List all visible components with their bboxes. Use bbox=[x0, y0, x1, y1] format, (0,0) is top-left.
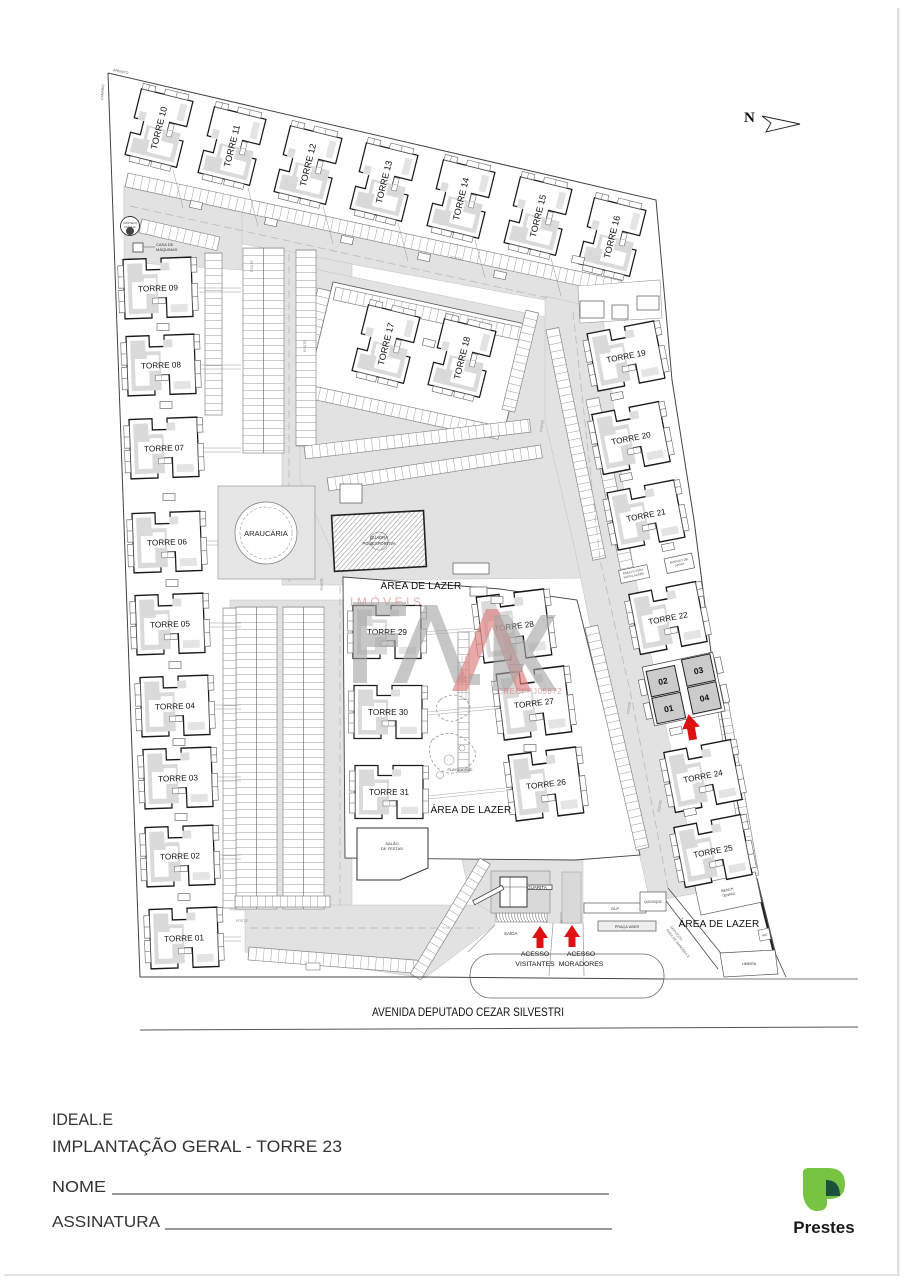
svg-text:ÁREA DE LAZER: ÁREA DE LAZER bbox=[381, 579, 462, 592]
svg-text:TORRE 09: TORRE 09 bbox=[138, 283, 179, 293]
svg-text:ÁREA DE LAZER: ÁREA DE LAZER bbox=[679, 917, 760, 930]
svg-text:ASSINATURA: ASSINATURA bbox=[52, 1214, 160, 1231]
svg-text:ACESSO: ACESSO bbox=[521, 951, 549, 958]
svg-text:POLIESPORTIVA: POLIESPORTIVA bbox=[362, 541, 395, 546]
svg-text:TORRE 04: TORRE 04 bbox=[155, 701, 196, 711]
svg-text:POSTE: POSTE bbox=[303, 339, 307, 352]
svg-text:GLP: GLP bbox=[611, 906, 619, 911]
svg-text:TORRE 01: TORRE 01 bbox=[164, 933, 205, 943]
svg-text:SAÍDA: SAÍDA bbox=[504, 930, 518, 936]
svg-text:TORRE 31: TORRE 31 bbox=[369, 788, 409, 797]
svg-text:MORADORES: MORADORES bbox=[559, 961, 604, 968]
svg-text:PRAÇA UBER: PRAÇA UBER bbox=[615, 925, 640, 929]
svg-text:IMPLANTAÇÃO GERAL - TORRE 23: IMPLANTAÇÃO GERAL - TORRE 23 bbox=[52, 1137, 342, 1156]
svg-text:Prestes: Prestes bbox=[793, 1218, 854, 1237]
svg-text:TORRE 05: TORRE 05 bbox=[150, 619, 191, 629]
svg-text:DE FESTAS: DE FESTAS bbox=[381, 846, 403, 851]
svg-text:ARAUCÁRIA: ARAUCÁRIA bbox=[244, 529, 288, 538]
svg-text:TORRE 06: TORRE 06 bbox=[147, 537, 188, 547]
svg-text:N: N bbox=[744, 110, 755, 126]
svg-text:POSTE: POSTE bbox=[320, 577, 324, 590]
svg-text:POSTE: POSTE bbox=[250, 259, 254, 272]
svg-text:GUARITA: GUARITA bbox=[527, 885, 547, 890]
svg-text:TORRE 08: TORRE 08 bbox=[141, 360, 182, 370]
svg-text:TORRE 07: TORRE 07 bbox=[144, 443, 185, 453]
svg-text:D'ÁGUA: D'ÁGUA bbox=[124, 225, 135, 229]
svg-text:MÁQUINAS: MÁQUINAS bbox=[156, 247, 178, 252]
svg-text:AVENIDA DEPUTADO CEZAR SILVEST: AVENIDA DEPUTADO CEZAR SILVESTRI bbox=[372, 1007, 564, 1019]
svg-text:QUADRA: QUADRA bbox=[370, 535, 388, 540]
svg-text:TORRE 30: TORRE 30 bbox=[368, 708, 408, 717]
svg-text:PLAYGROUND: PLAYGROUND bbox=[448, 768, 473, 772]
svg-text:NOME: NOME bbox=[52, 1179, 106, 1196]
svg-text:POSTE: POSTE bbox=[236, 919, 249, 923]
svg-text:CRECI - J05872: CRECI - J05872 bbox=[497, 687, 562, 696]
svg-text:ACESSO: ACESSO bbox=[567, 951, 595, 958]
svg-text:IDEAL.E: IDEAL.E bbox=[52, 1110, 113, 1129]
svg-text:QUIOSQUE: QUIOSQUE bbox=[644, 900, 663, 904]
svg-text:TORRE 02: TORRE 02 bbox=[160, 851, 201, 861]
svg-text:LIMEIRA: LIMEIRA bbox=[742, 962, 757, 966]
svg-text:ÁREA DE LAZER: ÁREA DE LAZER bbox=[431, 803, 512, 816]
svg-text:TORRE 03: TORRE 03 bbox=[158, 773, 199, 783]
svg-text:VISITANTES: VISITANTES bbox=[515, 961, 555, 968]
